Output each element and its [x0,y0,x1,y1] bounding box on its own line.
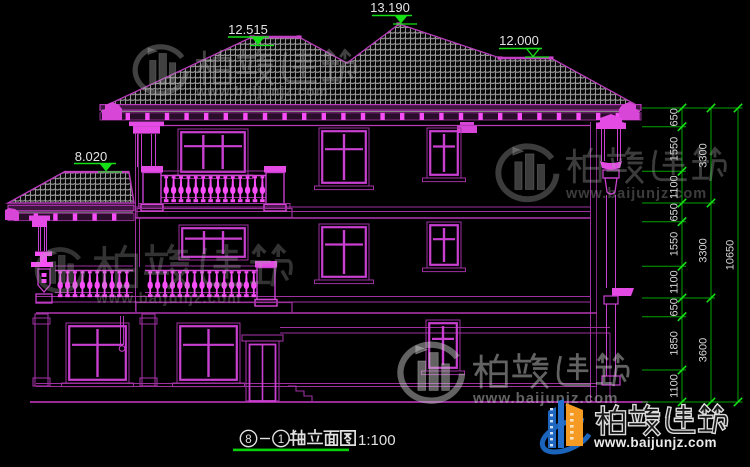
svg-text:1: 1 [278,434,284,446]
svg-text:650: 650 [669,108,681,126]
svg-text:www.baijunjz.com: www.baijunjz.com [472,390,618,407]
svg-text:8: 8 [245,434,251,446]
svg-text:650: 650 [669,203,681,221]
svg-text:www.baijunjz.com: www.baijunjz.com [95,290,241,307]
svg-text:www.baijunjz.com: www.baijunjz.com [195,84,329,99]
svg-text:1100: 1100 [669,270,681,294]
svg-text:650: 650 [669,298,681,316]
svg-text:8.020: 8.020 [75,149,108,164]
svg-text:10650: 10650 [725,240,737,271]
svg-text:1550: 1550 [669,232,681,256]
svg-text:1:100: 1:100 [358,432,396,449]
svg-text:3600: 3600 [698,338,710,362]
svg-text:www.baijunjz.com: www.baijunjz.com [593,435,717,450]
svg-text:3300: 3300 [698,238,710,262]
svg-text:13.190: 13.190 [370,0,410,15]
svg-text:www.baijunjz.com: www.baijunjz.com [565,186,707,202]
svg-text:12.515: 12.515 [228,22,268,37]
svg-text:1850: 1850 [669,331,681,355]
svg-text:12.000: 12.000 [499,33,539,48]
svg-text:1100: 1100 [669,374,681,398]
